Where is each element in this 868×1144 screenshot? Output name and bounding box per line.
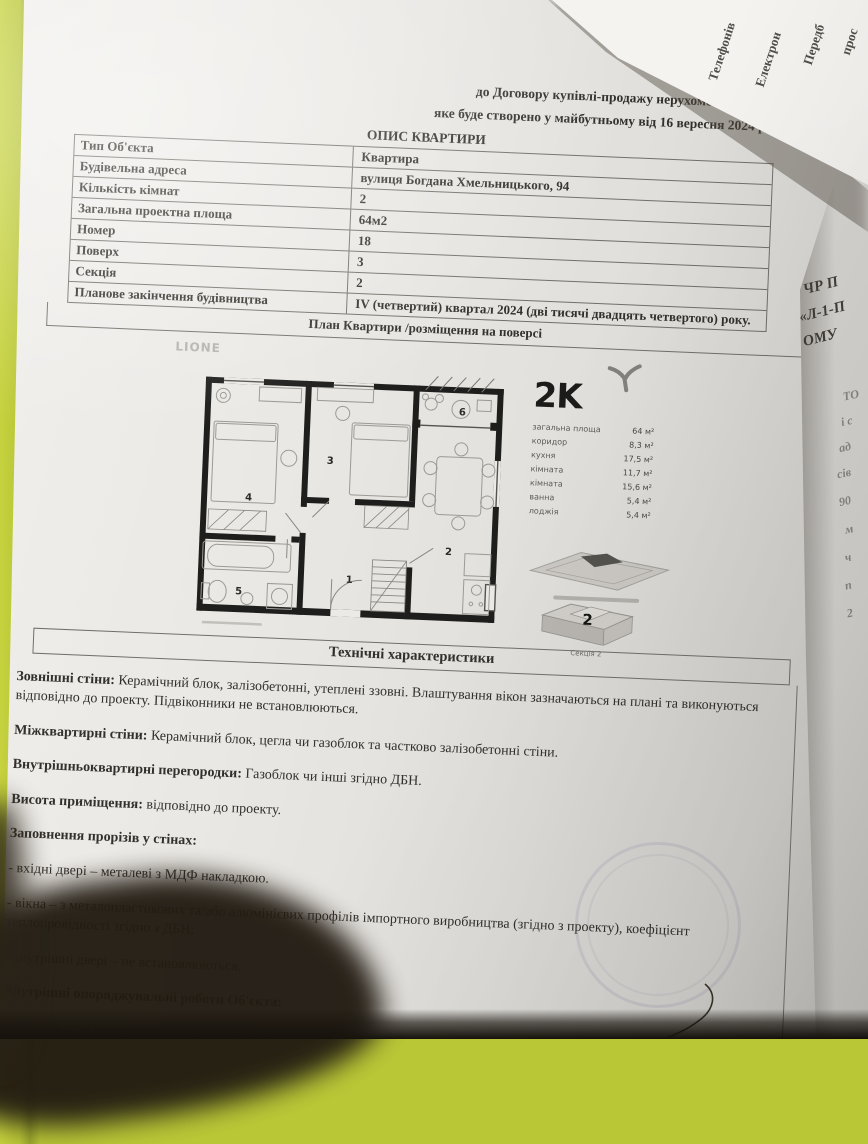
legend-value: 5,4 м² — [626, 510, 651, 520]
edge-text-faint: і с — [840, 413, 855, 430]
edge-text-faint: ч — [844, 550, 853, 566]
overlay-word: Передб — [800, 22, 828, 67]
edge-text-faint: м — [844, 521, 855, 537]
paragraph-label: Зовнішні стіни: — [16, 668, 115, 687]
legend-value: 8,3 м² — [629, 440, 654, 450]
apartment-legend: 2K загальна площа64 м² коридор8,3 м² кух… — [528, 378, 656, 525]
paragraph-text: Керамічний блок, залізобетонні, утеплені… — [15, 673, 759, 718]
legend-label: кімната — [530, 464, 563, 474]
legend-value: 11,7 м² — [623, 468, 653, 478]
room-number: 6 — [459, 407, 466, 418]
legend-row: лоджія5,4 м² — [529, 506, 651, 520]
paragraph-label: Внутрішньоквартирні перегородки: — [12, 757, 242, 782]
photo-of-document: { "document": { "appendix_title": "Додат… — [0, 0, 868, 1039]
edge-text-faint: сів — [836, 465, 853, 483]
legend-label: загальна площа — [532, 422, 601, 434]
legend-label: коридор — [532, 436, 568, 446]
legend-label: ванна — [529, 492, 554, 502]
paragraph-label: Заповнення прорізів у стінах: — [10, 826, 198, 849]
edge-text-faint: 2 — [846, 606, 855, 622]
legend-value: 5,4 м² — [627, 496, 652, 506]
paragraph-label: Міжквартирні стіни: — [14, 723, 148, 744]
room-numbers: 1 2 3 4 5 6 — [235, 398, 466, 606]
overlay-word: Телефонів — [705, 20, 739, 83]
bottom-shadow-bar — [0, 1009, 868, 1039]
stairs — [371, 559, 407, 611]
room-number: 1 — [346, 574, 353, 585]
legend-row: ванна5,4 м² — [529, 492, 651, 506]
overlay-word: прос — [838, 26, 862, 57]
paragraph-text: Керамічний блок, цегла чи газоблок та ча… — [147, 728, 558, 760]
legend-label: кухня — [531, 450, 556, 460]
room-number: 4 — [245, 492, 252, 503]
legend-label: лоджія — [529, 506, 559, 516]
room-number: 2 — [445, 546, 452, 557]
scale-note — [202, 620, 262, 625]
edge-text-faint: ТО — [842, 387, 861, 405]
legend-label: кімната — [530, 478, 563, 488]
legend-row: кімната15,6 м² — [530, 478, 652, 492]
legend-row: кухня17,5 м² — [531, 450, 653, 464]
paragraph-text: Газоблок чи інші згідно ДБН. — [242, 767, 423, 790]
spec-table: Тип Об'єктаКвартира Будівельна адресавул… — [67, 133, 773, 331]
legend-value: 15,6 м² — [622, 482, 652, 492]
edge-text-faint: 90 — [838, 493, 853, 510]
paragraph-label: Висота приміщення: — [11, 792, 143, 813]
floor-plan-area: LIONE — [33, 325, 801, 658]
edge-text-fragment: ОМУ — [801, 326, 839, 351]
overlay-word: Електрон — [752, 30, 785, 89]
edge-text-fragment: ЧР П — [801, 274, 840, 299]
edge-text-faint: ад — [838, 439, 853, 456]
building-section-diagram: 2 Секція 2 — [531, 592, 644, 660]
edge-text-fragment: «Л-1-П — [798, 299, 848, 327]
edge-text-faint: п — [844, 577, 854, 593]
room-number: 3 — [326, 455, 333, 466]
legend-value: 64 м² — [632, 426, 654, 436]
developer-watermark: LIONE — [175, 339, 221, 355]
apartment-floor-plan: 1 2 3 4 5 6 — [184, 362, 517, 637]
room-number: 5 — [235, 586, 242, 597]
legend-value: 17,5 м² — [623, 454, 653, 464]
section-badge: 2 — [582, 610, 593, 628]
legend-row: коридор8,3 м² — [532, 436, 654, 450]
legend-row: кімната11,7 м² — [530, 464, 652, 478]
apartment-code: 2K — [533, 378, 656, 417]
paragraph-text: відповідно до проекту. — [143, 797, 282, 818]
legend-row: загальна площа64 м² — [532, 422, 654, 436]
